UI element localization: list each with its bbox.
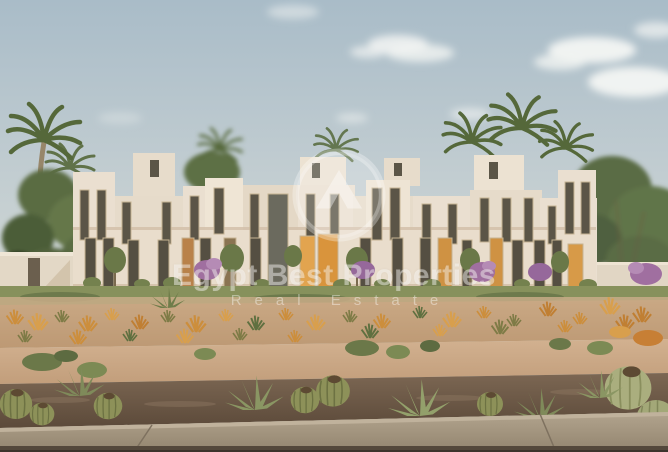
- townhouse-row: [73, 153, 597, 292]
- real-estate-rendering: Egypt Best Properties Real Estate: [0, 0, 668, 452]
- property-scene: [0, 0, 668, 452]
